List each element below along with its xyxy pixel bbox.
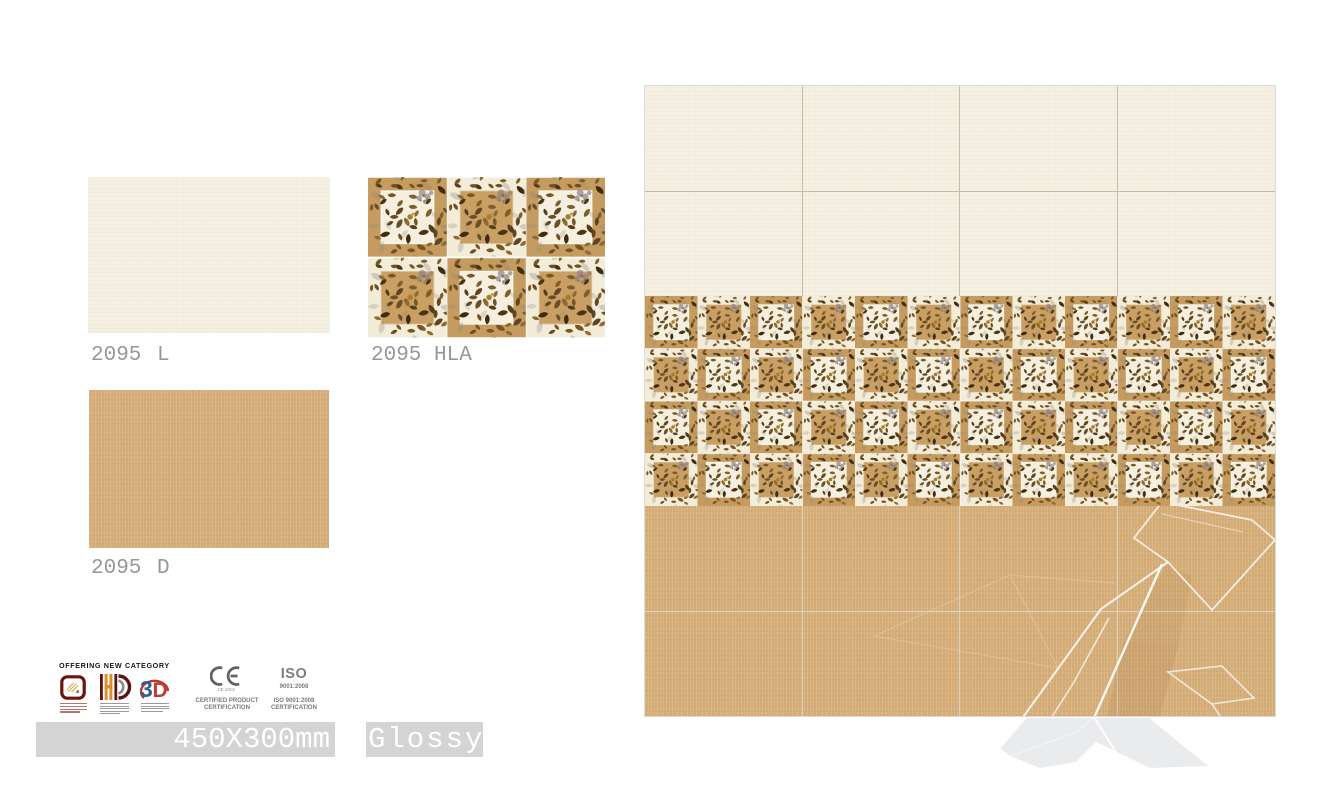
svg-text:D: D — [153, 679, 168, 702]
svg-text:3: 3 — [140, 676, 153, 702]
